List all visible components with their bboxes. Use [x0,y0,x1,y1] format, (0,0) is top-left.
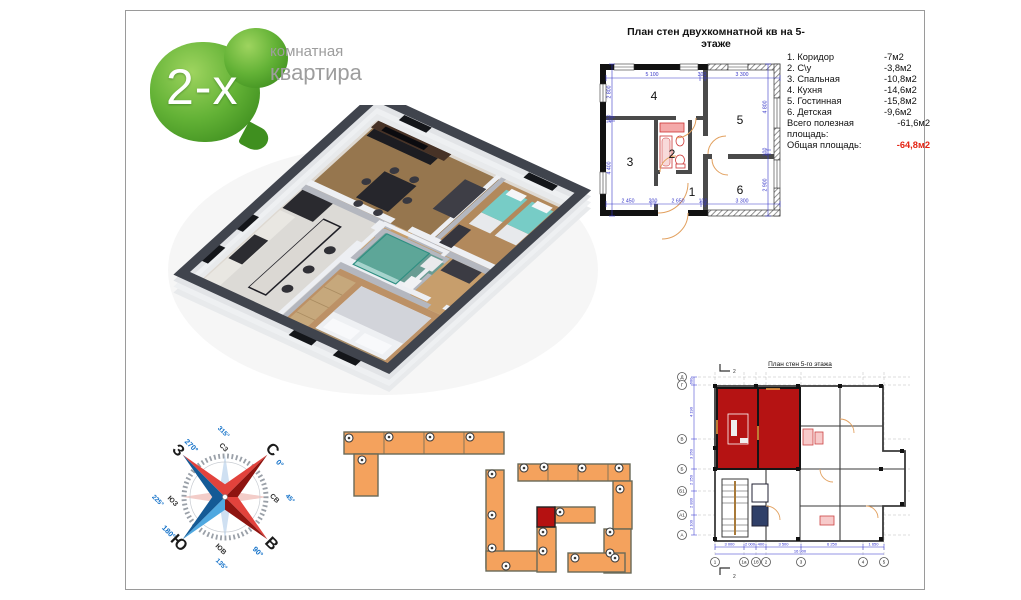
total-area-value: -64,8м2 [897,140,930,151]
axis-label: В [680,437,683,442]
legend-row: 6. Детская-9,6м2 [787,107,930,118]
dim-label: 100 [763,148,769,157]
dim-label: 2 250 [689,474,694,485]
legend-room-label: 1. Коридор [787,52,884,63]
dim-label: 2 450 [622,198,635,204]
dim-label: 5 100 [646,72,659,78]
elevator-shaft [752,506,768,526]
room-number-5: 5 [737,113,744,127]
compass-se-label: ЮВ [214,543,228,557]
axis-label: Д [680,375,683,380]
useful-area-total: Всего полезная площадь:-61,6м2 [787,118,930,140]
legend-room-label: 4. Кухня [787,85,884,96]
legend-room-area: -10,8м2 [884,74,930,85]
dim-label: 200 [649,198,658,204]
dim-label: 4 400 [607,161,613,174]
useful-area-value: -61,6м2 [897,118,930,140]
legend-row: 5. Гостинная-15,8м2 [787,96,930,107]
compass-ne-label: СВ [268,493,280,505]
dim-label: 400 [758,542,765,547]
compass-deg-nw: 315° [216,424,231,439]
room-number-2: 2 [669,147,676,161]
small-plan-title: План стен 5-го этажа [768,361,832,368]
dim-label: 300 [698,72,707,78]
legend-room-label: 2. С\у [787,63,884,74]
highlighted-apartment [717,388,800,469]
logo-caption: комнатная квартира [270,44,362,85]
compass-deg-ne: 45° [284,492,297,505]
compass-deg-se: 135° [214,557,229,570]
axis-label: Б1 [679,489,685,494]
dim-label: 2 800 [607,85,613,98]
site-plan [332,420,644,588]
legend-room-area: -14,6м2 [884,85,930,96]
axis-label: 1б [753,560,759,565]
dim-label: 3 000 [724,542,735,547]
axis-label: 1а [741,560,747,565]
dim-label: 4 190 [689,406,694,417]
axis-label: А [680,533,683,538]
dim-label: 100 [607,115,613,124]
floor-plan-5th-floor: План стен 5-го этажа [670,356,928,590]
dim-label: 2 830 [689,497,694,508]
dim-label: 3 260 [689,448,694,459]
legend-room-area: -9,6м2 [884,107,930,118]
legend-room-area: -15,8м2 [884,96,930,107]
dim-label: 1 100 [689,519,694,530]
legend-row: 3. Спальная-10,8м2 [787,74,930,85]
dim-total-label: 16 900 [794,549,807,554]
room-number-4: 4 [651,89,658,103]
dim-label: 100 [699,198,708,204]
total-area-label: Общая площадь: [787,140,861,151]
compass-deg-n: 0° [274,458,285,469]
axis-label: Б [681,467,684,472]
dim-label: 600 [689,377,694,384]
stairwell [722,479,748,537]
legend-row: 2. С\у-3,8м2 [787,63,930,74]
apartment-3d-render [155,105,605,420]
room-legend: 1. Коридор-7м2 2. С\у-3,8м2 3. Спальная-… [787,52,930,151]
highlighted-section [537,507,555,527]
compass-sw-label: ЮЗ [166,495,180,509]
dim-label: 1 650 [868,542,879,547]
dim-label: 2 900 [763,178,769,191]
legend-row: 1. Коридор-7м2 [787,52,930,63]
legend-room-label: 3. Спальная [787,74,884,85]
room-number-1: 1 [689,185,696,199]
dim-label: 4 800 [763,100,769,113]
legend-row: 4. Кухня-14,6м2 [787,85,930,96]
legend-room-label: 5. Гостинная [787,96,884,107]
logo-caption-line2: квартира [270,61,362,86]
section-mark-label: 2 [733,369,736,375]
dim-label: 3 300 [736,72,749,78]
useful-area-label: Всего полезная площадь: [787,118,897,140]
building-block-left [344,432,504,496]
dim-label: 2 650 [672,198,685,204]
room-number-6: 6 [737,183,744,197]
compass-nw-label: СЗ [217,442,229,454]
legend-room-area: -7м2 [884,52,930,63]
dim-label: 3 300 [736,198,749,204]
axis-label: А1 [679,513,685,518]
main-floor-plan: 4 5 3 2 1 6 5 100 300 3 300 2 [592,40,798,240]
logo-caption-line1: комнатная [270,44,362,61]
legend-room-label: 6. Детская [787,107,884,118]
toilet [676,155,685,165]
dim-label: 2 000 [745,542,756,547]
dim-label: 3 500 [778,542,789,547]
compass-deg-w: 270° [183,437,200,454]
compass-deg-sw: 225° [152,493,166,508]
room-number-3: 3 [627,155,634,169]
compass-rose: С В Ю З 0° 90° 180° 270° СВ 45° ЮВ 135° … [152,424,298,570]
shaft [752,484,768,502]
flyer-canvas: 2-х комнатная квартира [0,0,1021,600]
total-area: Общая площадь:-64,8м2 [787,140,930,151]
section-mark-label: 2 [733,574,736,580]
dim-label: 6 250 [827,542,838,547]
legend-room-area: -3,8м2 [884,63,930,74]
